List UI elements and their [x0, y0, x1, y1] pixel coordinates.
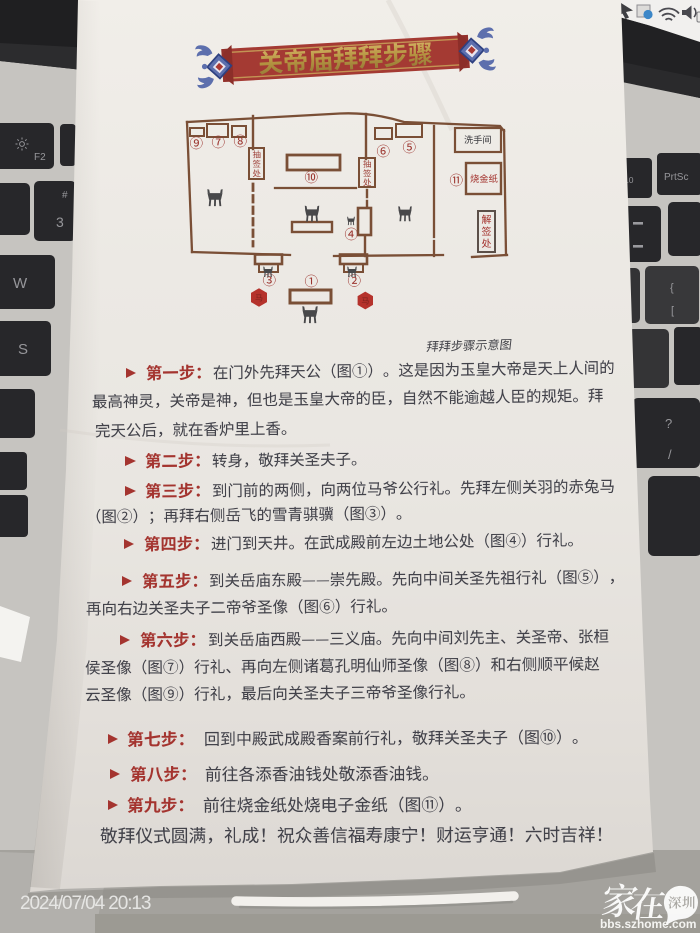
- svg-text:[: [: [671, 305, 674, 317]
- svg-text:S: S: [18, 341, 28, 358]
- svg-text:#: #: [62, 190, 68, 201]
- svg-text:2024/07/04 20:13: 2024/07/04 20:13: [20, 893, 151, 914]
- svg-text:?: ?: [665, 416, 672, 431]
- svg-text:bbs.szhome.com: bbs.szhome.com: [600, 917, 696, 931]
- svg-text:F2: F2: [34, 152, 46, 163]
- svg-text:PrtSc: PrtSc: [664, 172, 688, 183]
- svg-text:W: W: [13, 275, 28, 292]
- svg-text:{: {: [670, 282, 674, 294]
- svg-text:/: /: [668, 447, 672, 462]
- svg-text:3: 3: [56, 214, 64, 230]
